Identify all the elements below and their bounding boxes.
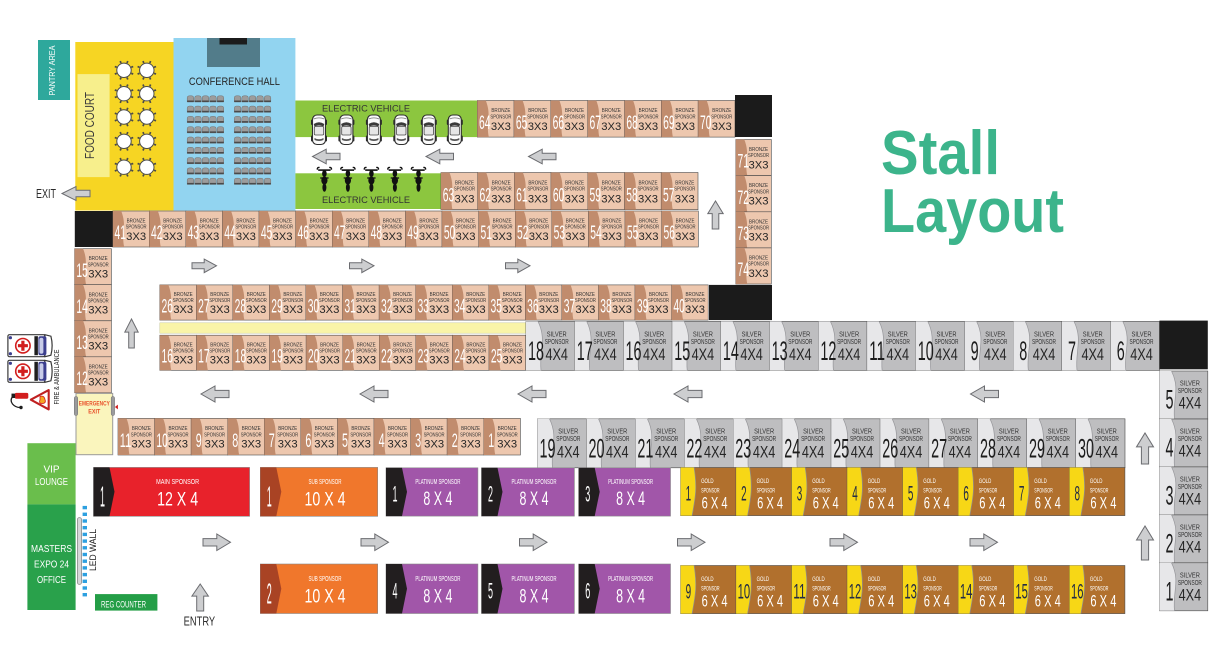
svg-text:GOLD: GOLD (757, 577, 770, 583)
svg-text:52: 52 (517, 223, 529, 244)
svg-text:4X4: 4X4 (643, 346, 666, 364)
svg-text:SPONSOR: SPONSOR (788, 339, 812, 346)
svg-text:SPONSOR: SPONSOR (490, 114, 511, 120)
svg-text:3X3: 3X3 (601, 121, 621, 133)
svg-text:3X3: 3X3 (675, 193, 695, 205)
svg-text:10: 10 (156, 431, 168, 452)
svg-text:3X3: 3X3 (675, 121, 695, 133)
svg-text:3X3: 3X3 (314, 439, 334, 451)
svg-text:GOLD: GOLD (979, 479, 992, 485)
svg-text:3X3: 3X3 (565, 231, 585, 243)
svg-text:SPONSOR: SPONSOR (850, 436, 874, 443)
svg-text:SPONSOR: SPONSOR (545, 339, 569, 346)
svg-text:3X3: 3X3 (429, 304, 449, 316)
svg-text:3X3: 3X3 (126, 231, 146, 243)
svg-text:REG COUNTER: REG COUNTER (101, 599, 146, 609)
svg-text:3: 3 (1166, 481, 1174, 511)
svg-text:SPONSOR: SPONSOR (899, 436, 923, 443)
svg-text:GOLD: GOLD (868, 479, 881, 485)
svg-text:3X3: 3X3 (205, 439, 225, 451)
svg-text:SPONSOR: SPONSOR (638, 114, 659, 120)
svg-text:38: 38 (600, 296, 612, 317)
svg-text:GOLD: GOLD (812, 479, 825, 485)
svg-text:SPONSOR: SPONSOR (314, 432, 335, 438)
svg-text:SPONSOR: SPONSOR (88, 262, 109, 268)
svg-text:3X3: 3X3 (528, 193, 548, 205)
svg-text:BRONZE: BRONZE (89, 328, 108, 334)
svg-text:53: 53 (554, 223, 566, 244)
svg-text:3X3: 3X3 (356, 354, 376, 366)
svg-text:SPONSOR: SPONSOR (387, 432, 408, 438)
svg-text:BRONZE: BRONZE (749, 256, 768, 262)
svg-text:28: 28 (980, 433, 996, 463)
svg-text:EXIT: EXIT (88, 409, 100, 416)
svg-text:BRONZE: BRONZE (493, 219, 512, 225)
svg-text:SPONSOR: SPONSOR (168, 432, 189, 438)
svg-text:69: 69 (663, 113, 675, 134)
svg-text:6 X 4: 6 X 4 (868, 591, 894, 610)
svg-text:49: 49 (407, 223, 419, 244)
svg-text:BRONZE: BRONZE (565, 180, 584, 186)
svg-text:BRONZE: BRONZE (132, 426, 151, 432)
svg-text:4X4: 4X4 (594, 346, 617, 364)
svg-text:BRONZE: BRONZE (491, 108, 510, 114)
svg-text:51: 51 (480, 223, 492, 244)
svg-text:BRONZE: BRONZE (351, 426, 370, 432)
svg-text:12: 12 (76, 369, 88, 390)
svg-text:3X3: 3X3 (639, 231, 659, 243)
svg-text:BRONZE: BRONZE (236, 219, 255, 225)
svg-text:1: 1 (267, 482, 272, 514)
svg-text:6: 6 (305, 431, 311, 452)
svg-text:4X4: 4X4 (789, 346, 812, 364)
svg-text:SPONSOR: SPONSOR (997, 436, 1021, 443)
svg-text:24: 24 (784, 433, 800, 463)
svg-text:ENTRY: ENTRY (184, 614, 216, 629)
svg-text:3X3: 3X3 (388, 439, 408, 451)
svg-text:4X4: 4X4 (1081, 346, 1104, 364)
svg-text:25: 25 (833, 433, 849, 463)
svg-text:PLATINUM SPONSOR: PLATINUM SPONSOR (608, 576, 653, 583)
svg-text:41: 41 (114, 223, 126, 244)
svg-text:SPONSOR: SPONSOR (455, 225, 476, 231)
svg-text:3X3: 3X3 (565, 193, 585, 205)
svg-text:17: 17 (577, 336, 593, 366)
svg-text:4X4: 4X4 (704, 443, 727, 461)
svg-text:8: 8 (1074, 483, 1080, 506)
svg-text:3X3: 3X3 (319, 304, 339, 316)
svg-text:2: 2 (1166, 529, 1174, 559)
svg-text:1: 1 (1166, 577, 1174, 607)
svg-text:67: 67 (590, 113, 602, 134)
svg-text:SILVER: SILVER (644, 331, 664, 338)
svg-text:24: 24 (454, 347, 466, 368)
svg-text:3X3: 3X3 (429, 354, 449, 366)
svg-text:6 X 4: 6 X 4 (1090, 493, 1116, 512)
svg-text:GOLD: GOLD (923, 577, 936, 583)
svg-text:6 X 4: 6 X 4 (924, 591, 950, 610)
svg-text:FOOD COURT: FOOD COURT (82, 92, 97, 159)
svg-text:1: 1 (686, 483, 692, 506)
svg-text:BRONZE: BRONZE (528, 108, 547, 114)
svg-text:SPONSOR: SPONSOR (691, 339, 715, 346)
svg-text:21: 21 (344, 347, 356, 368)
svg-text:4X4: 4X4 (545, 346, 568, 364)
svg-text:SPONSOR: SPONSOR (748, 189, 769, 195)
svg-text:BRONZE: BRONZE (89, 256, 108, 262)
svg-text:4: 4 (393, 579, 398, 604)
svg-text:SPONSOR: SPONSOR (497, 432, 518, 438)
svg-text:GOLD: GOLD (701, 577, 714, 583)
svg-text:SPONSOR: SPONSOR (1032, 339, 1056, 346)
svg-text:4X4: 4X4 (1047, 443, 1070, 461)
svg-text:SPONSOR: SPONSOR (345, 225, 366, 231)
svg-text:15: 15 (674, 336, 690, 366)
svg-text:5: 5 (342, 431, 348, 452)
svg-text:SPONSOR: SPONSOR (837, 339, 861, 346)
svg-text:14: 14 (723, 336, 739, 366)
svg-text:3X3: 3X3 (199, 231, 219, 243)
svg-text:SPONSOR: SPONSOR (235, 225, 256, 231)
svg-text:GOLD: GOLD (868, 577, 881, 583)
svg-text:8 X 4: 8 X 4 (520, 586, 549, 607)
svg-text:10: 10 (738, 581, 751, 604)
svg-text:3X3: 3X3 (309, 231, 329, 243)
svg-text:5: 5 (488, 579, 493, 604)
svg-text:1: 1 (393, 482, 398, 507)
svg-text:3X3: 3X3 (749, 232, 769, 244)
svg-text:3X3: 3X3 (466, 354, 486, 366)
svg-text:61: 61 (516, 186, 528, 207)
svg-text:6 X 4: 6 X 4 (868, 493, 894, 512)
svg-text:SPONSOR: SPONSOR (886, 339, 910, 346)
svg-text:3X3: 3X3 (246, 354, 266, 366)
svg-text:4X4: 4X4 (655, 443, 678, 461)
svg-text:SPONSOR: SPONSOR (88, 370, 109, 376)
svg-text:OFFICE: OFFICE (37, 575, 66, 586)
svg-text:3X3: 3X3 (712, 121, 732, 133)
svg-text:SILVER: SILVER (1048, 429, 1068, 436)
svg-text:PANTRY AREA: PANTRY AREA (47, 45, 57, 95)
svg-text:SILVER: SILVER (1034, 331, 1054, 338)
svg-text:58: 58 (626, 186, 638, 207)
svg-text:SUB SPONSOR: SUB SPONSOR (309, 576, 342, 583)
svg-text:PLATINUM SPONSOR: PLATINUM SPONSOR (512, 576, 557, 583)
svg-text:SPONSOR: SPONSOR (638, 187, 659, 193)
svg-text:6 X 4: 6 X 4 (813, 591, 839, 610)
svg-text:SPONSOR: SPONSOR (528, 225, 549, 231)
svg-text:BRONZE: BRONZE (639, 180, 658, 186)
svg-text:3X3: 3X3 (393, 304, 413, 316)
svg-text:GOLD: GOLD (812, 577, 825, 583)
svg-text:BRONZE: BRONZE (602, 180, 621, 186)
svg-text:3X3: 3X3 (497, 439, 517, 451)
svg-text:3X3: 3X3 (382, 231, 402, 243)
svg-text:BRONZE: BRONZE (639, 219, 658, 225)
svg-text:SILVER: SILVER (693, 331, 713, 338)
svg-text:4X4: 4X4 (984, 346, 1007, 364)
svg-text:MAIN SPONSOR: MAIN SPONSOR (156, 479, 199, 486)
svg-text:SPONSOR: SPONSOR (204, 432, 225, 438)
svg-text:4X4: 4X4 (802, 443, 825, 461)
svg-text:BRONZE: BRONZE (749, 183, 768, 189)
svg-text:3X3: 3X3 (424, 439, 444, 451)
svg-text:29: 29 (1029, 433, 1045, 463)
svg-text:SILVER: SILVER (1180, 477, 1200, 484)
svg-text:11: 11 (120, 431, 132, 452)
svg-text:36: 36 (527, 296, 539, 317)
svg-text:SPONSOR: SPONSOR (675, 114, 696, 120)
svg-text:BRONZE: BRONZE (639, 108, 658, 114)
svg-text:BRONZE: BRONZE (529, 219, 548, 225)
svg-text:3X3: 3X3 (539, 304, 559, 316)
svg-text:4X4: 4X4 (692, 346, 715, 364)
svg-text:3X3: 3X3 (88, 269, 108, 281)
svg-text:4: 4 (1166, 433, 1174, 463)
svg-text:65: 65 (516, 113, 528, 134)
svg-text:15: 15 (1015, 581, 1028, 604)
svg-text:3X3: 3X3 (638, 193, 658, 205)
svg-text:3X3: 3X3 (131, 439, 151, 451)
svg-text:3X3: 3X3 (210, 354, 230, 366)
svg-text:MASTERS: MASTERS (31, 544, 72, 555)
svg-text:6: 6 (963, 483, 969, 506)
svg-text:SPONSOR: SPONSOR (1046, 436, 1070, 443)
svg-text:CONFERENCE HALL: CONFERENCE HALL (189, 76, 280, 88)
svg-text:20: 20 (589, 433, 605, 463)
svg-text:1: 1 (100, 482, 105, 514)
svg-text:3X3: 3X3 (675, 231, 695, 243)
svg-text:SILVER: SILVER (742, 331, 762, 338)
svg-text:SPONSOR: SPONSOR (748, 153, 769, 159)
svg-text:SPONSOR: SPONSOR (454, 187, 475, 193)
svg-text:3X3: 3X3 (246, 304, 266, 316)
svg-text:EXIT: EXIT (36, 186, 56, 201)
svg-text:22: 22 (686, 433, 702, 463)
svg-text:BRONZE: BRONZE (492, 180, 511, 186)
svg-text:6 X 4: 6 X 4 (813, 493, 839, 512)
svg-text:BRONZE: BRONZE (163, 219, 182, 225)
svg-text:3X3: 3X3 (283, 354, 303, 366)
svg-text:11: 11 (869, 336, 885, 366)
svg-text:3X3: 3X3 (749, 268, 769, 280)
svg-text:SPONSOR: SPONSOR (748, 226, 769, 232)
svg-text:7: 7 (269, 431, 275, 452)
svg-text:62: 62 (479, 186, 491, 207)
svg-text:GOLD: GOLD (1034, 479, 1047, 485)
svg-text:3X3: 3X3 (491, 193, 511, 205)
svg-text:66: 66 (553, 113, 565, 134)
svg-text:59: 59 (590, 186, 602, 207)
svg-text:17: 17 (198, 347, 210, 368)
svg-text:8: 8 (232, 431, 238, 452)
svg-text:SILVER: SILVER (937, 331, 957, 338)
svg-text:SUB SPONSOR: SUB SPONSOR (309, 479, 342, 486)
svg-text:SPONSOR: SPONSOR (711, 114, 732, 120)
svg-text:BRONZE: BRONZE (310, 219, 329, 225)
svg-text:SPONSOR: SPONSOR (350, 432, 371, 438)
svg-text:5: 5 (1166, 385, 1174, 415)
svg-text:3: 3 (415, 431, 421, 452)
svg-text:SILVER: SILVER (985, 331, 1005, 338)
svg-text:SILVER: SILVER (547, 331, 567, 338)
svg-text:6 X 4: 6 X 4 (979, 591, 1005, 610)
svg-text:BRONZE: BRONZE (566, 219, 585, 225)
svg-text:SILVER: SILVER (607, 429, 627, 436)
svg-text:9: 9 (686, 581, 692, 604)
svg-text:SILVER: SILVER (1132, 331, 1152, 338)
svg-text:5: 5 (908, 483, 914, 506)
svg-text:13: 13 (772, 336, 788, 366)
svg-text:3X3: 3X3 (601, 193, 621, 205)
svg-text:BRONZE: BRONZE (315, 426, 334, 432)
svg-text:SPONSOR: SPONSOR (638, 225, 659, 231)
svg-text:43: 43 (188, 223, 200, 244)
svg-text:SILVER: SILVER (803, 429, 823, 436)
svg-text:BRONZE: BRONZE (127, 219, 146, 225)
svg-text:PLATINUM SPONSOR: PLATINUM SPONSOR (512, 479, 557, 486)
svg-text:6 X 4: 6 X 4 (757, 591, 783, 610)
svg-text:3X3: 3X3 (466, 304, 486, 316)
svg-text:6: 6 (1117, 336, 1125, 366)
svg-text:3: 3 (797, 483, 803, 506)
svg-text:SILVER: SILVER (790, 331, 810, 338)
svg-text:PLATINUM SPONSOR: PLATINUM SPONSOR (608, 479, 653, 486)
svg-text:8 X 4: 8 X 4 (423, 489, 452, 510)
svg-text:3X3: 3X3 (503, 354, 523, 366)
svg-text:BRONZE: BRONZE (200, 219, 219, 225)
svg-text:BRONZE: BRONZE (749, 219, 768, 225)
svg-text:4X4: 4X4 (1179, 395, 1202, 413)
svg-text:10 X 4: 10 X 4 (305, 489, 346, 510)
svg-text:SPONSOR: SPONSOR (277, 432, 298, 438)
svg-text:LOUNGE: LOUNGE (35, 477, 68, 488)
svg-text:6 X 4: 6 X 4 (1090, 591, 1116, 610)
svg-text:SPONSOR: SPONSOR (88, 298, 109, 304)
svg-text:SPONSOR: SPONSOR (564, 114, 585, 120)
svg-text:8 X 4: 8 X 4 (520, 489, 549, 510)
svg-text:10 X 4: 10 X 4 (305, 586, 346, 607)
svg-text:3X3: 3X3 (236, 231, 256, 243)
svg-text:3: 3 (585, 482, 590, 507)
svg-text:SPONSOR: SPONSOR (601, 225, 622, 231)
svg-text:SILVER: SILVER (705, 429, 725, 436)
svg-text:SILVER: SILVER (1083, 331, 1103, 338)
svg-text:2: 2 (452, 431, 458, 452)
svg-text:8: 8 (1019, 336, 1027, 366)
svg-text:3X3: 3X3 (210, 304, 230, 316)
svg-text:6 X 4: 6 X 4 (979, 493, 1005, 512)
svg-text:56: 56 (663, 223, 675, 244)
svg-text:3X3: 3X3 (649, 304, 669, 316)
svg-text:19: 19 (271, 347, 283, 368)
svg-text:2: 2 (267, 579, 272, 611)
svg-text:SPONSOR: SPONSOR (556, 436, 580, 443)
svg-text:SPONSOR: SPONSOR (642, 339, 666, 346)
svg-text:6 X 4: 6 X 4 (1035, 591, 1061, 610)
svg-text:GOLD: GOLD (1090, 577, 1103, 583)
svg-text:Layout: Layout (881, 177, 1064, 246)
svg-text:37: 37 (564, 296, 576, 317)
svg-text:SPONSOR: SPONSOR (654, 436, 678, 443)
svg-text:SPONSOR: SPONSOR (593, 339, 617, 346)
svg-text:BRONZE: BRONZE (89, 292, 108, 298)
svg-text:SILVER: SILVER (888, 331, 908, 338)
svg-text:BRONZE: BRONZE (565, 108, 584, 114)
svg-text:SILVER: SILVER (558, 429, 578, 436)
svg-text:3X3: 3X3 (529, 231, 549, 243)
svg-text:30: 30 (1078, 433, 1094, 463)
svg-text:7: 7 (1019, 483, 1025, 506)
svg-text:3X3: 3X3 (749, 196, 769, 208)
svg-text:4X4: 4X4 (1033, 346, 1056, 364)
svg-text:3X3: 3X3 (455, 193, 475, 205)
svg-text:8 X 4: 8 X 4 (616, 489, 645, 510)
svg-text:3X3: 3X3 (163, 231, 183, 243)
svg-text:SILVER: SILVER (1180, 573, 1200, 580)
svg-text:13: 13 (76, 333, 88, 354)
svg-text:4X4: 4X4 (949, 443, 972, 461)
svg-text:BRONZE: BRONZE (456, 219, 475, 225)
svg-text:GOLD: GOLD (979, 577, 992, 583)
svg-text:2: 2 (488, 482, 493, 507)
svg-text:4X4: 4X4 (557, 443, 580, 461)
svg-text:35: 35 (491, 296, 503, 317)
svg-text:SPONSOR: SPONSOR (1130, 339, 1154, 346)
svg-text:SILVER: SILVER (852, 429, 872, 436)
svg-text:3X3: 3X3 (461, 439, 481, 451)
svg-text:23: 23 (418, 347, 430, 368)
svg-text:57: 57 (663, 186, 675, 207)
svg-text:3X3: 3X3 (173, 304, 193, 316)
svg-text:SILVER: SILVER (656, 429, 676, 436)
svg-text:3X3: 3X3 (173, 354, 193, 366)
svg-text:SPONSOR: SPONSOR (703, 436, 727, 443)
svg-text:47: 47 (334, 223, 346, 244)
svg-text:SILVER: SILVER (839, 331, 859, 338)
svg-text:3X3: 3X3 (565, 121, 585, 133)
svg-text:SILVER: SILVER (1180, 429, 1200, 436)
svg-text:4X4: 4X4 (887, 346, 910, 364)
svg-text:LED WALL: LED WALL (88, 529, 98, 571)
svg-text:4X4: 4X4 (851, 443, 874, 461)
svg-text:4X4: 4X4 (1179, 491, 1202, 509)
svg-text:PLATINUM SPONSOR: PLATINUM SPONSOR (415, 576, 460, 583)
svg-text:15: 15 (76, 261, 88, 282)
svg-text:22: 22 (381, 347, 393, 368)
svg-text:BRONZE: BRONZE (346, 219, 365, 225)
svg-text:BRONZE: BRONZE (528, 180, 547, 186)
svg-text:3X3: 3X3 (393, 354, 413, 366)
svg-text:FIRE & AMBULANCE: FIRE & AMBULANCE (54, 349, 61, 404)
svg-text:SPONSOR: SPONSOR (460, 432, 481, 438)
svg-text:SPONSOR: SPONSOR (935, 339, 959, 346)
svg-text:SILVER: SILVER (950, 429, 970, 436)
svg-text:33: 33 (417, 296, 429, 317)
svg-text:32: 32 (381, 296, 393, 317)
svg-text:3X3: 3X3 (685, 304, 705, 316)
svg-text:3X3: 3X3 (638, 121, 658, 133)
svg-text:SPONSOR: SPONSOR (601, 187, 622, 193)
svg-text:3X3: 3X3 (278, 439, 298, 451)
svg-text:SPONSOR: SPONSOR (752, 436, 776, 443)
svg-text:7: 7 (1068, 336, 1076, 366)
svg-text:ELECTRIC VEHICLE: ELECTRIC VEHICLE (322, 104, 410, 115)
svg-text:EMERGENCY: EMERGENCY (79, 401, 110, 408)
svg-text:BRONZE: BRONZE (602, 108, 621, 114)
svg-text:SPONSOR: SPONSOR (309, 225, 330, 231)
svg-text:4: 4 (379, 431, 385, 452)
